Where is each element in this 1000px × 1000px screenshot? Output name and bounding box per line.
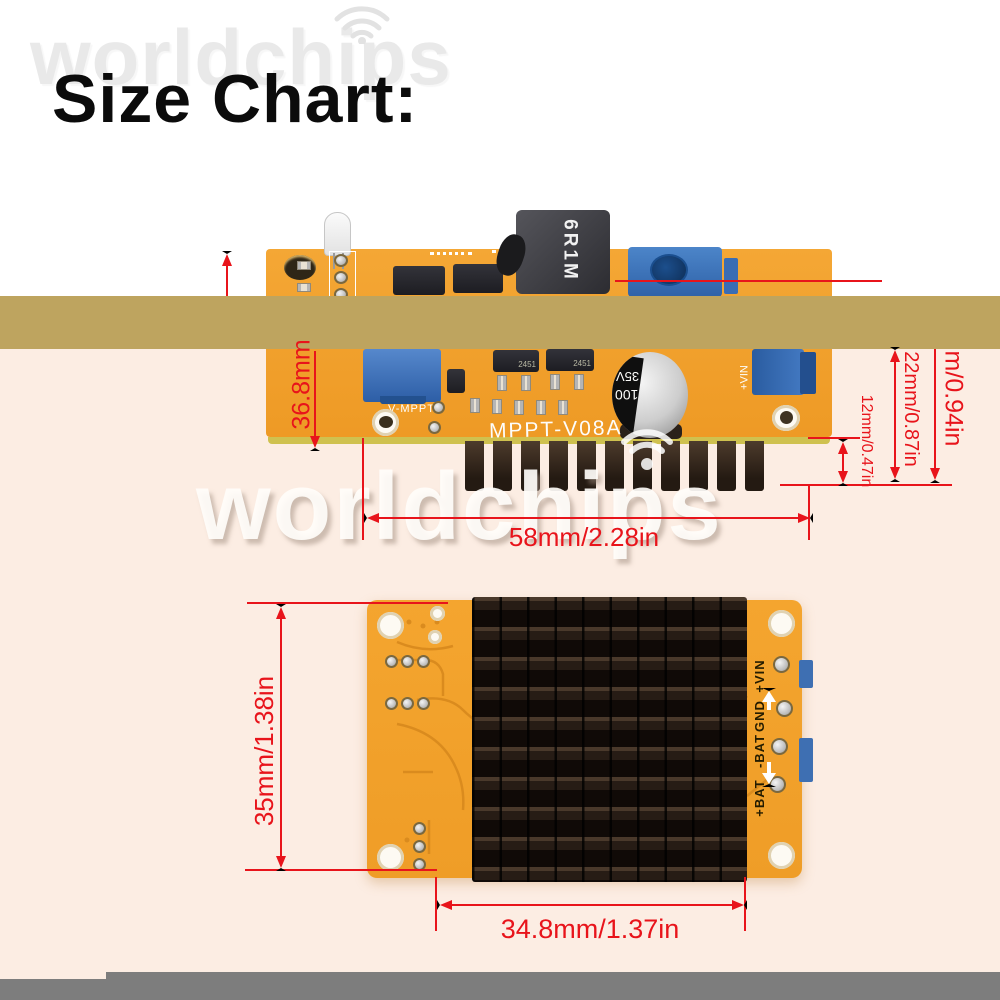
dim-label-heatsink-width: 34.8mm/1.37in (478, 916, 702, 943)
dim-line (314, 351, 316, 438)
footer-bar-notch (0, 972, 106, 979)
ic-chip: 2451 (546, 349, 594, 371)
capacitor-voltage: 35V (616, 370, 639, 383)
heatsink-fin (745, 441, 764, 491)
terminal-block-edge (724, 258, 738, 294)
dim-extension-line (808, 437, 860, 439)
dim-arrowhead (276, 856, 286, 871)
dim-line (934, 349, 936, 470)
smd-resistor (492, 399, 502, 414)
polarity-arrow-down (762, 773, 776, 787)
mosfet-chip (453, 264, 503, 293)
dim-label-board-height: 36.8mm (290, 337, 315, 433)
pin-label-bat-neg: -BAT (753, 726, 767, 776)
ic-chip: 2451 (493, 350, 539, 372)
trimmer-pot (363, 349, 441, 402)
smd-resistor (297, 283, 311, 292)
dim-line (447, 904, 737, 906)
solder-pad (771, 738, 788, 755)
dim-extension-line (245, 869, 437, 871)
solder-pad (401, 697, 414, 710)
dim-arrowhead (890, 467, 900, 482)
mounting-hole (377, 612, 404, 639)
hole-center (780, 411, 793, 424)
smd-resistor (536, 400, 546, 415)
dim-arrowhead (732, 900, 747, 910)
dim-extension-line (615, 280, 882, 282)
via-hole (428, 630, 442, 644)
smd-pad (550, 374, 560, 390)
solder-pad (334, 254, 348, 267)
capacitor-capacitance: 100 (615, 388, 638, 402)
solder-pad (401, 655, 414, 668)
transistor (447, 369, 465, 393)
silkscreen-dots (430, 252, 472, 255)
solder-pad (334, 271, 348, 284)
dim-label-component-height: 22mm/0.87in (901, 332, 921, 486)
dim-label-overall-height: m/0.94in (941, 342, 966, 456)
solder-pad (432, 401, 445, 414)
polarity-arrow-stem (767, 698, 771, 710)
hole-center (379, 416, 393, 428)
dim-arrowhead (930, 468, 940, 483)
inductor-marking: 6R1M (561, 216, 580, 286)
vin-silkscreen: +VIN (740, 361, 751, 395)
mosfet-chip (393, 266, 445, 295)
solder-pad (385, 655, 398, 668)
solder-pad (385, 697, 398, 710)
dim-line (374, 517, 800, 519)
tan-band (0, 296, 1000, 349)
dim-label-fin-height: 12mm/0.47in (858, 381, 874, 501)
mounting-hole (768, 842, 795, 869)
via-hole (430, 606, 445, 621)
smd-resistor (514, 400, 524, 415)
ic-marking: 2451 (518, 361, 536, 369)
terminal-block-edge (799, 660, 813, 688)
mounting-hole (768, 610, 795, 637)
solder-pad (428, 421, 441, 434)
dim-label-board-width: 58mm/2.28in (504, 524, 664, 550)
terminal-block-side (752, 349, 804, 395)
dim-label-bottom-height: 35mm/1.38in (251, 673, 277, 829)
dim-arrowhead (798, 513, 813, 523)
dim-arrowhead (838, 471, 848, 486)
mounting-hole (377, 844, 404, 871)
terminal-block-edge (799, 738, 813, 782)
footer-bar (0, 972, 1000, 1000)
dim-arrowhead (310, 436, 320, 451)
wifi-icon (616, 420, 678, 472)
smd-pad (497, 375, 507, 391)
solder-pad (417, 697, 430, 710)
dim-line (894, 355, 896, 469)
solder-pad (776, 700, 793, 717)
solder-pad (417, 655, 430, 668)
dim-extension-line (362, 438, 364, 540)
solder-pad (413, 822, 426, 835)
smd-pad (521, 375, 531, 391)
terminal-block-face (800, 352, 816, 394)
smd-resistor (470, 398, 480, 413)
solder-pad (413, 840, 426, 853)
heatsink (472, 597, 747, 882)
smd-resistor (558, 400, 568, 415)
dim-line (226, 259, 228, 296)
led-clear (324, 212, 351, 256)
ic-marking: 2451 (573, 360, 591, 368)
bottom-board-photo: +VIN GND -BAT +BAT (0, 560, 1000, 960)
dim-line (280, 612, 282, 860)
smd-resistor (297, 261, 311, 270)
size-chart-image: worldchips Size Chart: (0, 0, 1000, 1000)
smd-pad (574, 374, 584, 390)
board-model-silkscreen: MPPT-V08A (489, 417, 623, 441)
solder-pad (773, 656, 790, 673)
